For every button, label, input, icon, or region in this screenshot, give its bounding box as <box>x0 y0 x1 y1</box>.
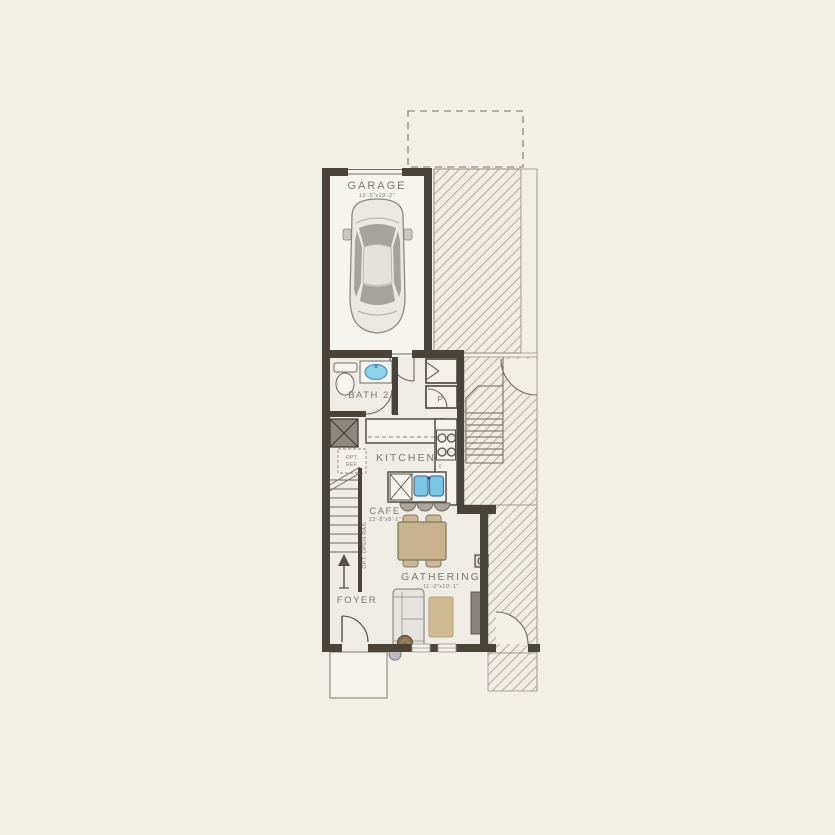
closet-pantry: P <box>426 359 457 408</box>
stove-icon <box>437 430 456 460</box>
neighbor-unit-top <box>434 169 537 353</box>
car-windshield <box>359 224 396 247</box>
dining-table-set <box>398 515 446 567</box>
entry-porch <box>330 652 387 698</box>
kitchen-label: KITCHEN <box>376 452 436 464</box>
neighbor-porch <box>488 653 537 691</box>
car-illustration <box>343 199 412 333</box>
island-stools <box>400 503 450 511</box>
pantry-label: P <box>437 394 444 404</box>
cafe-label: CAFE <box>369 506 400 517</box>
kitchen-island <box>388 472 446 502</box>
opt-ref-line1: OPT. <box>346 455 358 461</box>
bath2-label: BATH 2 <box>348 390 390 401</box>
car-mirror-right <box>404 229 412 240</box>
dining-table <box>398 522 446 560</box>
car-rear-window <box>360 284 395 305</box>
area-rug <box>429 597 453 637</box>
gathering-label: GATHERING <box>401 571 481 583</box>
floor-plan-page: GARAGE 10'-5"x19'-2" <box>0 0 835 835</box>
car-mirror-left <box>343 229 351 240</box>
gathering-dims: 11'-0"x19'-1" <box>423 584 459 590</box>
cafe-dims: 13'-8"x8'-1" <box>369 517 402 523</box>
opt-ref-line2: REF. <box>346 462 358 468</box>
foyer-label: FOYER <box>337 595 377 606</box>
car-roof <box>363 245 392 286</box>
garage-label: GARAGE <box>347 180 406 192</box>
opt-open-rail-label: OPT. OPEN RAIL <box>362 521 368 568</box>
coat-closet <box>426 359 457 383</box>
bath-sink-icon <box>360 361 392 383</box>
mech-chase <box>330 419 358 447</box>
garage-dims: 10'-5"x19'-2" <box>359 193 395 199</box>
floor-plan-svg: GARAGE 10'-5"x19'-2" <box>0 0 835 835</box>
kitchen-counter-top <box>366 419 444 443</box>
